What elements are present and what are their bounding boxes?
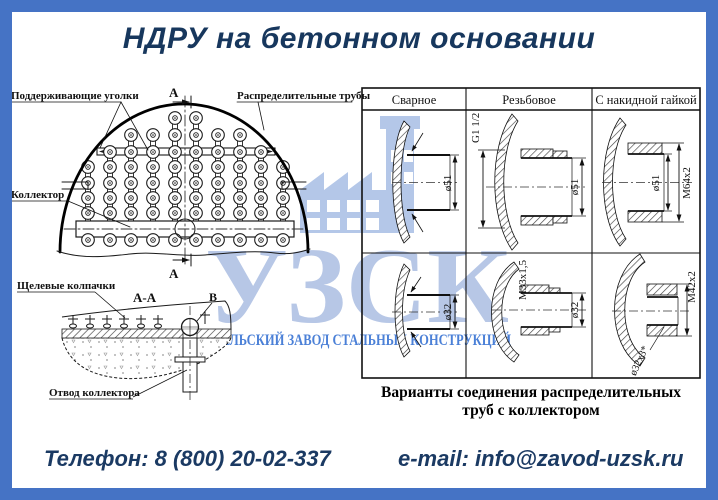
detail-circle xyxy=(181,318,199,336)
cell-welded-51: ø51 xyxy=(392,121,459,243)
table-caption: Варианты соединения распределительных тр… xyxy=(381,384,681,419)
side-angle-stubs xyxy=(62,182,306,189)
page-title: НДРУ на бетонном основании xyxy=(0,22,718,56)
dim-label: M33x1,5 xyxy=(517,259,529,300)
phone-number: Телефон: 8 (800) 20-02-337 xyxy=(44,446,331,472)
section-mark-bottom: А xyxy=(169,254,191,281)
table-headers: Сварное Резьбовое С накидной гайкой xyxy=(392,93,697,107)
dim-label: M42x2 xyxy=(686,271,698,303)
column-header-union-nut: С накидной гайкой xyxy=(595,93,697,107)
label-collector: Коллектор xyxy=(11,189,64,201)
email-address: e-mail: info@zavod-uzsk.ru xyxy=(398,446,683,472)
svg-text:А: А xyxy=(169,85,179,100)
table-caption-line1: Варианты соединения распределительных xyxy=(381,384,681,401)
column-header-threaded: Резьбовое xyxy=(502,93,556,107)
page: УЗСК УРАЛЬСКИЙ ЗАВОД СТАЛЬНЫХ КОНСТРУКЦИ… xyxy=(0,0,718,500)
label-slot-caps: Щелевые колпачки xyxy=(17,280,116,292)
cell-threaded-32: M33x1,5 ø32 xyxy=(492,259,589,362)
break-line xyxy=(57,249,310,257)
dim-label: ø32 xyxy=(442,304,454,321)
label-collector-outlet: Отвод коллектора xyxy=(49,387,140,399)
dim-label: M64x2 xyxy=(681,167,693,199)
perforated-plate xyxy=(62,329,231,338)
detail-mark-label: В xyxy=(209,290,217,304)
plan-leader-lines xyxy=(11,102,352,227)
center-lines xyxy=(64,96,306,264)
dome-plan-drawing: А А Поддерживающие уголки Распределитель… xyxy=(11,85,370,281)
label-supporting-angles: Поддерживающие уголки xyxy=(11,90,139,102)
cell-threaded-51: G1 1/2 ø51 xyxy=(470,113,588,250)
dim-label: ø51 xyxy=(442,175,454,192)
dim-label: G1 1/2 xyxy=(470,113,482,143)
table-caption-line2: труб с коллектором xyxy=(462,402,600,419)
technical-drawing: А А Поддерживающие уголки Распределитель… xyxy=(0,0,718,500)
dim-label: ø51 xyxy=(569,179,581,196)
svg-text:А: А xyxy=(169,266,179,281)
section-aa-drawing: А-А В Щелевые колпачки Отвод коллектора xyxy=(17,280,231,400)
dim-label: ø32 xyxy=(569,302,581,319)
cell-union-nut-32: M42x2 ø32x3* xyxy=(612,254,698,378)
supporting-angle-bar xyxy=(97,148,275,155)
connections-table: Сварное Резьбовое С накидной гайкой ø51 xyxy=(362,88,700,419)
cell-welded-32: ø32 xyxy=(392,264,459,357)
concrete-base xyxy=(62,338,231,379)
section-title: А-А xyxy=(133,290,157,305)
column-header-welded: Сварное xyxy=(392,93,437,107)
label-distribution-pipes: Распределительные трубы xyxy=(237,90,370,102)
dim-label: ø51 xyxy=(650,175,662,192)
cell-union-nut-51: ø51 M64x2 xyxy=(602,118,693,246)
